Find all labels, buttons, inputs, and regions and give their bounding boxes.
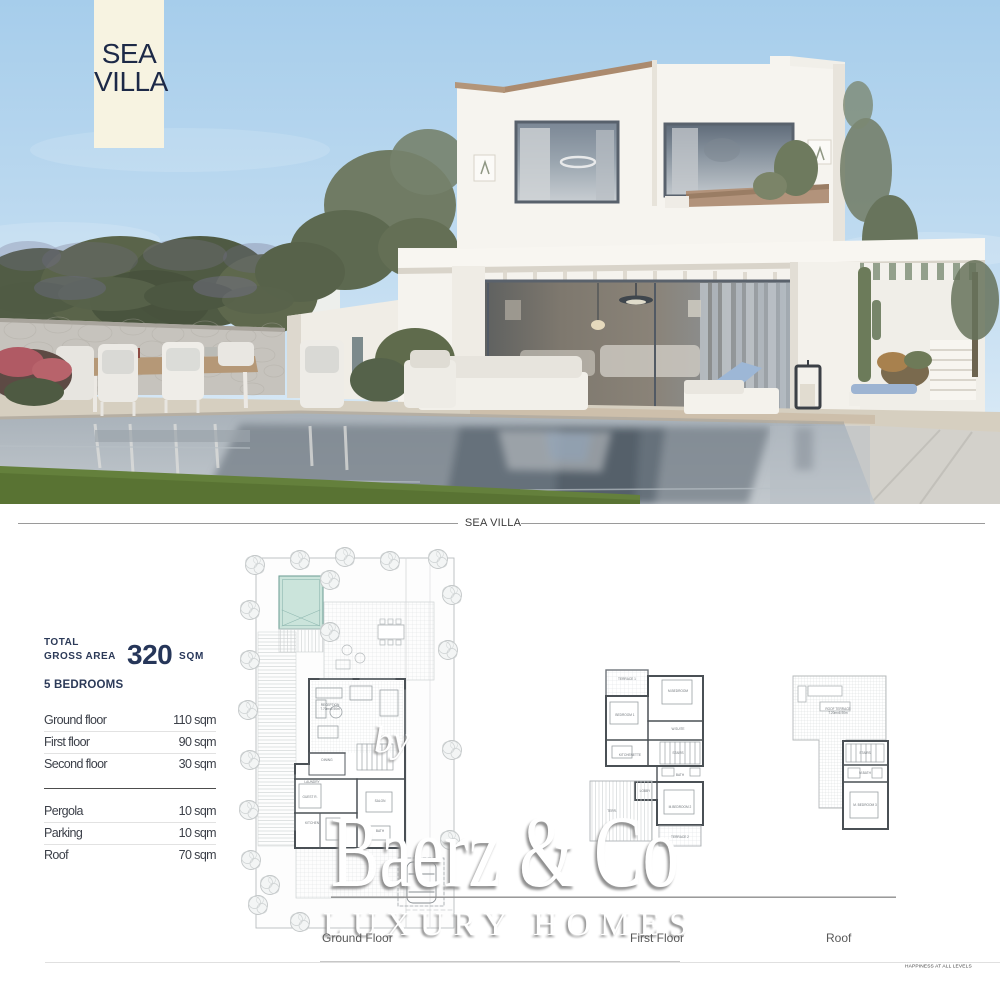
svg-text:Baerz & Co: Baerz & Co [331,795,679,909]
svg-text:by: by [374,719,410,761]
